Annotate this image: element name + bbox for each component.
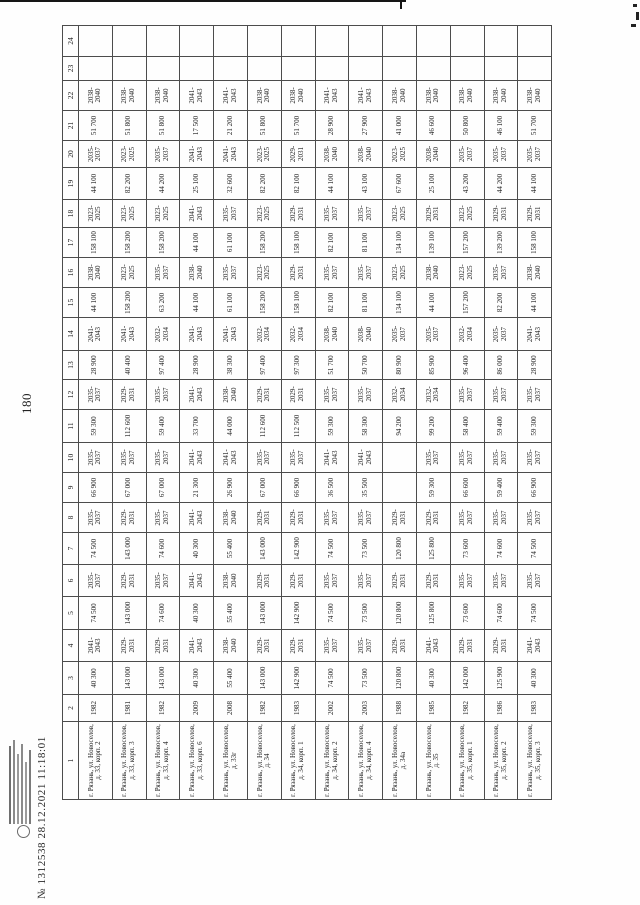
data-cell: 66 900 [518,473,552,503]
data-cell: 36 500 [315,473,349,503]
data-cell: 67 000 [146,473,180,503]
data-cell: 2041-2043 [214,443,248,473]
data-cell: 35 500 [349,473,383,503]
data-cell: 74 600 [484,533,518,565]
data-cell: 58 300 [349,410,383,443]
data-cell [383,57,417,81]
data-cell: 58 400 [450,410,484,443]
data-cell: 142 900 [281,533,315,565]
data-cell: 59 400 [484,410,518,443]
data-cell: 28 900 [315,111,349,141]
data-cell: 157 200 [450,228,484,258]
data-cell: 33 700 [180,410,214,443]
data-cell: 2029-2031 [484,200,518,228]
data-cell: 2023-2025 [112,258,146,288]
data-cell: 2029-2031 [450,630,484,662]
data-cell: 157 200 [450,288,484,318]
data-cell: 2032-2034 [450,318,484,351]
data-cell: 59 400 [146,410,180,443]
build-year-cell: 1982 [450,695,484,722]
data-cell: 2035-2037 [315,630,349,662]
data-cell: 21 300 [180,473,214,503]
data-cell: 2029-2031 [281,380,315,410]
data-cell: 2035-2037 [518,503,552,533]
data-cell: 2035-2037 [315,380,349,410]
data-cell: 2041-2043 [349,443,383,473]
data-cell: 2035-2037 [214,200,248,228]
data-cell: 2035-2037 [315,200,349,228]
scan-speck [633,4,637,7]
address-cell: г. Рязань, ул. Новоселов, д. 35, корп. 3 [518,722,552,800]
build-year-cell: 2002 [315,695,349,722]
build-year-cell: 1982 [79,695,113,722]
data-cell: 2023-2025 [112,141,146,168]
data-cell: 44 100 [518,288,552,318]
data-cell: 2023-2025 [146,200,180,228]
data-cell: 2041-2043 [180,141,214,168]
data-cell: 21 200 [214,111,248,141]
data-cell: 2035-2037 [349,503,383,533]
table-row: г. Рязань, ул. Новоселов, д. 35, корп. 2… [484,26,518,800]
data-cell: 142 900 [281,597,315,630]
data-cell: 59 400 [484,473,518,503]
data-cell: 2023-2025 [450,200,484,228]
data-cell: 2029-2031 [112,565,146,597]
build-year-cell: 2003 [349,695,383,722]
data-cell: 96 400 [450,351,484,380]
data-cell: 2035-2037 [518,443,552,473]
data-cell: 28 900 [180,351,214,380]
data-cell: 55 400 [214,662,248,695]
page-number: 180 [19,393,35,414]
column-number: 6 [63,565,79,597]
data-cell: 43 200 [450,168,484,200]
column-number: 13 [63,351,79,380]
build-year-cell: 1986 [484,695,518,722]
repair-program-table: 123456789101112131415161718192021222324 … [62,25,552,800]
data-cell: 142 000 [450,662,484,695]
data-cell: 2029-2031 [383,503,417,533]
data-cell: 28 900 [518,351,552,380]
data-cell: 74 600 [484,597,518,630]
data-cell: 66 900 [79,473,113,503]
data-cell: 51 700 [79,111,113,141]
column-number: 19 [63,168,79,200]
data-cell: 2041-2043 [180,81,214,111]
build-year-cell: 1988 [383,695,417,722]
table-row: г. Рязань, ул. Новоселов, д. 35, корп. 3… [518,26,552,800]
scan-edge-line [0,0,406,2]
data-cell: 2035-2037 [484,503,518,533]
data-cell: 43 100 [349,168,383,200]
scan-speck [636,12,639,20]
data-cell: 81 100 [349,288,383,318]
data-cell: 59 300 [79,410,113,443]
data-cell: 51 700 [518,111,552,141]
data-cell: 158 200 [146,228,180,258]
data-cell: 38 300 [214,351,248,380]
data-cell: 2035-2037 [450,565,484,597]
stamp-logo-icon [17,825,30,838]
address-cell: г. Рязань, ул. Новоселов, д. 33, корп. 3 [112,722,146,800]
data-cell: 40 300 [416,662,450,695]
data-cell: 120 800 [383,662,417,695]
data-cell: 40 300 [180,662,214,695]
table-row: г. Рязань, ул. Новоселов, д. 33, корп. 4… [146,26,180,800]
data-cell: 2023-2025 [383,141,417,168]
data-cell: 74 500 [518,533,552,565]
column-number: 12 [63,380,79,410]
data-cell: 44 100 [180,288,214,318]
data-cell: 61 100 [214,288,248,318]
data-cell: 2038-2040 [214,380,248,410]
data-cell [281,26,315,57]
data-cell: 82 100 [315,228,349,258]
data-cell: 2038-2040 [450,81,484,111]
data-cell: 2041-2043 [214,141,248,168]
data-cell: 142 900 [281,662,315,695]
data-cell [146,26,180,57]
data-cell: 2038-2040 [416,81,450,111]
data-cell: 2041-2043 [180,503,214,533]
data-cell: 44 200 [484,168,518,200]
data-cell: 2041-2043 [315,81,349,111]
data-cell: 2041-2043 [180,565,214,597]
data-cell: 2023-2025 [247,258,281,288]
column-number: 11 [63,410,79,443]
data-cell: 2035-2037 [349,630,383,662]
column-number: 9 [63,473,79,503]
data-cell: 85 900 [416,351,450,380]
table-row: г. Рязань, ул. Новоселов, д. 341982143 0… [247,26,281,800]
data-cell: 2035-2037 [349,565,383,597]
address-cell: г. Рязань, ул. Новоселов, д. 34а [383,722,417,800]
data-cell: 2032-2034 [146,318,180,351]
data-cell: 158 100 [281,228,315,258]
data-cell: 97 400 [247,351,281,380]
data-cell [518,26,552,57]
data-cell: 120 800 [383,533,417,565]
table-row: г. Рязань, ул. Новоселов, д. 34, корп. 2… [315,26,349,800]
data-cell: 2029-2031 [247,503,281,533]
data-cell: 80 900 [383,351,417,380]
data-cell: 2035-2037 [484,258,518,288]
data-cell: 2041-2043 [180,630,214,662]
data-cell: 44 000 [214,410,248,443]
data-cell [315,26,349,57]
address-cell: г. Рязань, ул. Новоселов, д. 33, корп. 4 [146,722,180,800]
data-cell: 81 100 [349,228,383,258]
data-cell: 82 200 [112,168,146,200]
column-number: 3 [63,662,79,695]
data-cell: 2029-2031 [247,630,281,662]
scanned-page: 123456789101112131415161718192021222324 … [0,0,640,905]
data-cell [79,57,113,81]
build-year-cell: 1982 [247,695,281,722]
data-cell: 2023-2025 [383,258,417,288]
data-cell: 2029-2031 [416,200,450,228]
data-cell: 2035-2037 [214,258,248,288]
data-cell: 67 600 [383,168,417,200]
data-cell: 2029-2031 [518,200,552,228]
data-cell [112,26,146,57]
data-cell: 40 400 [112,351,146,380]
data-cell: 2035-2037 [315,258,349,288]
data-cell [180,57,214,81]
data-cell: 46 100 [484,111,518,141]
data-cell: 2041-2043 [180,443,214,473]
data-cell: 2041-2043 [180,200,214,228]
table-row: г. Рязань, ул. Новоселов, д. 33г200855 4… [214,26,248,800]
data-cell [349,57,383,81]
data-cell: 143 000 [247,662,281,695]
scan-speck [631,24,636,27]
data-cell: 99 200 [416,410,450,443]
data-cell: 2035-2037 [79,380,113,410]
data-cell: 27 900 [349,111,383,141]
data-cell: 2035-2037 [484,318,518,351]
data-cell: 44 100 [180,228,214,258]
data-cell: 2038-2040 [247,81,281,111]
data-cell: 2041-2043 [518,630,552,662]
table-body: г. Рязань, ул. Новоселов, д. 33, корп. 2… [79,26,552,800]
data-cell: 2038-2040 [349,318,383,351]
data-cell: 2038-2040 [349,141,383,168]
data-cell: 143 000 [112,533,146,565]
build-year-cell: 1983 [281,695,315,722]
data-cell: 125 800 [416,597,450,630]
data-cell: 2023-2025 [247,141,281,168]
data-cell: 67 000 [247,473,281,503]
data-cell [450,26,484,57]
data-cell: 2035-2037 [416,443,450,473]
data-cell: 2029-2031 [281,141,315,168]
data-cell: 2029-2031 [247,380,281,410]
data-cell [247,26,281,57]
column-number: 8 [63,503,79,533]
column-number: 1 [63,722,79,800]
data-cell: 51 700 [281,111,315,141]
address-cell: г. Рязань, ул. Новоселов, д. 34, корп. 2 [315,722,349,800]
data-cell: 2038-2040 [146,81,180,111]
data-cell: 2038-2040 [281,81,315,111]
build-year-cell: 1982 [146,695,180,722]
data-cell: 66 900 [281,473,315,503]
data-cell: 2038-2040 [112,81,146,111]
data-cell: 143 000 [247,533,281,565]
data-cell: 50 800 [450,111,484,141]
data-cell: 73 500 [349,662,383,695]
data-cell: 73 500 [349,533,383,565]
data-cell [383,473,417,503]
data-cell: 2035-2037 [146,443,180,473]
data-cell: 67 000 [112,473,146,503]
build-year-cell: 1981 [112,695,146,722]
data-cell: 2035-2037 [315,503,349,533]
data-cell: 2035-2037 [450,380,484,410]
data-cell: 2023-2025 [450,258,484,288]
data-cell: 2041-2043 [214,81,248,111]
data-cell: 73 600 [450,533,484,565]
data-cell: 59 300 [518,410,552,443]
data-cell: 134 100 [383,228,417,258]
data-cell: 2035-2037 [484,565,518,597]
data-cell: 2032-2034 [383,380,417,410]
data-cell: 125 900 [484,662,518,695]
data-cell: 2029-2031 [112,503,146,533]
data-cell: 82 100 [281,168,315,200]
table-row: г. Рязань, ул. Новоселов, д. 34, корп. 4… [349,26,383,800]
column-number: 21 [63,111,79,141]
table-row: г. Рязань, ул. Новоселов, д. 35, корп. 1… [450,26,484,800]
data-cell: 82 200 [484,288,518,318]
data-cell: 158 200 [112,288,146,318]
data-cell: 2029-2031 [484,630,518,662]
data-cell: 143 000 [146,662,180,695]
data-cell: 143 000 [112,597,146,630]
data-cell: 2035-2037 [484,443,518,473]
data-cell: 112 500 [281,410,315,443]
data-cell: 2035-2037 [450,141,484,168]
data-cell: 2038-2040 [79,81,113,111]
data-cell: 2041-2043 [349,81,383,111]
data-cell [180,26,214,57]
data-cell: 86 000 [484,351,518,380]
data-cell: 2029-2031 [281,630,315,662]
data-cell: 125 800 [416,533,450,565]
data-cell: 94 200 [383,410,417,443]
data-cell: 2035-2037 [484,141,518,168]
data-cell: 2041-2043 [79,318,113,351]
data-cell: 74 600 [146,533,180,565]
data-cell: 2035-2037 [349,200,383,228]
data-cell: 158 200 [112,228,146,258]
column-number-row: 123456789101112131415161718192021222324 [63,26,79,800]
data-cell: 2041-2043 [416,630,450,662]
data-cell: 2029-2031 [146,630,180,662]
data-cell: 25 100 [416,168,450,200]
data-cell: 2029-2031 [416,503,450,533]
data-cell: 40 300 [518,662,552,695]
data-cell: 2038-2040 [315,141,349,168]
table-row: г. Рязань, ул. Новоселов, д. 34, корп. 1… [281,26,315,800]
data-cell: 2038-2040 [518,81,552,111]
table-row: г. Рязань, ул. Новоселов, д. 33, корп. 2… [79,26,113,800]
data-cell: 2035-2037 [383,318,417,351]
data-cell: 2035-2037 [518,380,552,410]
data-cell: 50 700 [349,351,383,380]
build-year-cell: 1983 [518,695,552,722]
data-cell: 2041-2043 [112,318,146,351]
address-cell: г. Рязань, ул. Новоселов, д. 33, корп. 6 [180,722,214,800]
table-row: г. Рязань, ул. Новоселов, д. 34а1988120 … [383,26,417,800]
column-number: 20 [63,141,79,168]
data-cell: 112 600 [247,410,281,443]
column-number: 5 [63,597,79,630]
data-cell: 32 600 [214,168,248,200]
data-cell: 40 300 [79,662,113,695]
data-cell [214,26,248,57]
data-cell [247,57,281,81]
data-cell: 73 600 [450,597,484,630]
data-cell: 2023-2025 [112,200,146,228]
data-cell: 2038-2040 [214,565,248,597]
data-cell: 2035-2037 [146,258,180,288]
data-cell: 74 500 [518,597,552,630]
address-cell: г. Рязань, ул. Новоселов, д. 35 [416,722,450,800]
data-cell: 74 500 [315,662,349,695]
data-cell [214,57,248,81]
data-cell: 51 700 [315,351,349,380]
data-cell: 51 800 [146,111,180,141]
column-number: 15 [63,288,79,318]
data-cell: 2035-2037 [146,380,180,410]
address-cell: г. Рязань, ул. Новоселов, д. 34, корп. 1 [281,722,315,800]
column-number: 14 [63,318,79,351]
build-year-cell: 2008 [214,695,248,722]
data-cell: 2035-2037 [112,443,146,473]
data-cell: 25 100 [180,168,214,200]
table-row: г. Рязань, ул. Новоселов, д. 33, корп. 6… [180,26,214,800]
data-cell: 158 200 [247,228,281,258]
data-cell: 143 000 [112,662,146,695]
data-cell: 74 500 [79,597,113,630]
data-cell: 2038-2040 [518,258,552,288]
data-cell: 2035-2037 [450,443,484,473]
data-cell: 143 000 [247,597,281,630]
data-cell: 2029-2031 [112,630,146,662]
data-cell: 26 900 [214,473,248,503]
rotated-table-area: 123456789101112131415161718192021222324 … [62,26,537,800]
data-cell: 2035-2037 [416,318,450,351]
data-cell [383,26,417,57]
data-cell: 2035-2037 [518,141,552,168]
data-cell: 2038-2040 [315,318,349,351]
column-number: 4 [63,630,79,662]
data-cell: 2035-2037 [349,258,383,288]
data-cell [281,57,315,81]
data-cell: 158 200 [247,288,281,318]
data-cell: 2038-2040 [79,258,113,288]
data-cell: 82 200 [247,168,281,200]
data-cell: 2035-2037 [79,503,113,533]
data-cell: 2035-2037 [79,443,113,473]
data-cell: 2035-2037 [349,380,383,410]
address-cell: г. Рязань, ул. Новоселов, д. 35, корп. 1 [450,722,484,800]
address-cell: г. Рязань, ул. Новоселов, д. 33г [214,722,248,800]
data-cell: 44 100 [315,168,349,200]
data-cell [416,26,450,57]
data-cell: 2038-2040 [416,141,450,168]
data-cell: 44 100 [79,168,113,200]
data-cell: 2035-2037 [79,565,113,597]
data-cell: 2032-2034 [247,318,281,351]
data-cell: 44 100 [79,288,113,318]
data-cell: 2035-2037 [518,565,552,597]
address-cell: г. Рязань, ул. Новоселов, д. 33, корп. 2 [79,722,113,800]
data-cell: 2032-2034 [281,318,315,351]
data-cell [349,26,383,57]
column-number: 23 [63,57,79,81]
data-cell: 44 200 [146,168,180,200]
column-number: 17 [63,228,79,258]
data-cell: 2038-2040 [383,81,417,111]
data-cell: 158 100 [79,228,113,258]
data-cell: 74 500 [79,533,113,565]
table-row: г. Рязань, ул. Новоселов, д. 33, корп. 3… [112,26,146,800]
data-cell [315,57,349,81]
data-cell: 2029-2031 [383,630,417,662]
